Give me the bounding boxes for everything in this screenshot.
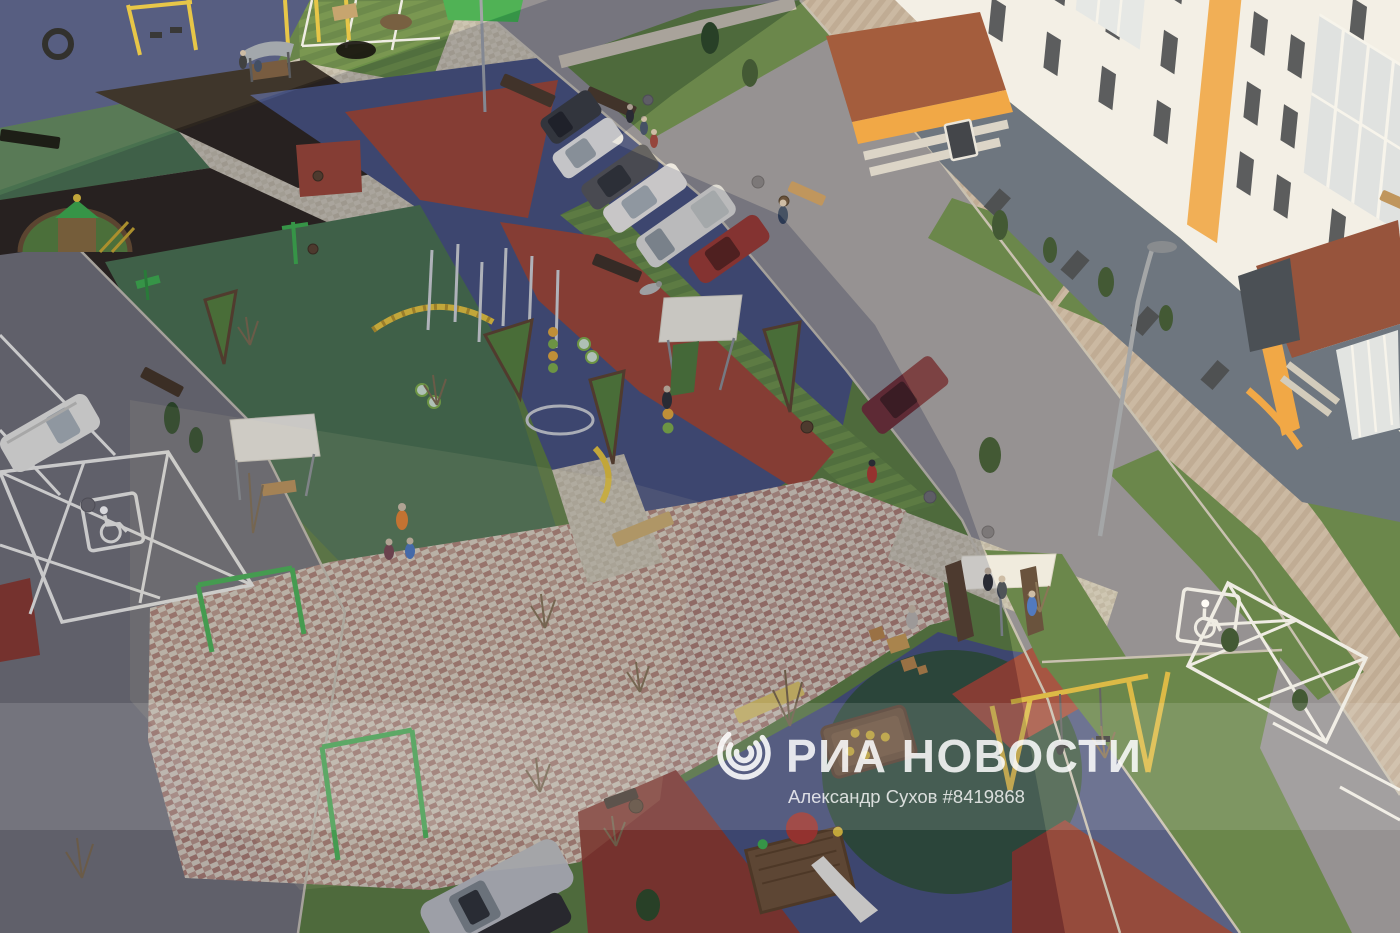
watermark-band (0, 703, 1400, 830)
courtyard-scene: РИА НОВОСТИ Александр Сухов #8419868 (0, 0, 1400, 933)
watermark-credit-text: Александр Сухов #8419868 (788, 786, 1025, 807)
watermark: РИА НОВОСТИ Александр Сухов #8419868 (0, 703, 1400, 830)
aerial-photo-canvas: РИА НОВОСТИ Александр Сухов #8419868 (0, 0, 1400, 933)
watermark-agency-text: РИА НОВОСТИ (786, 730, 1142, 782)
